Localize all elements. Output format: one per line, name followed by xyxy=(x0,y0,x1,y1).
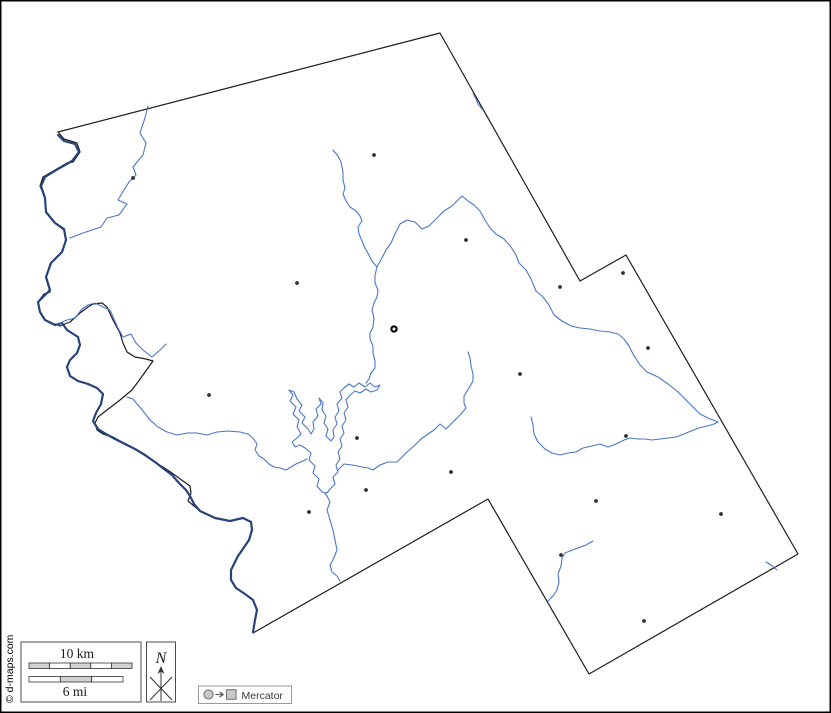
county-symbol-square xyxy=(227,690,237,700)
town-dot xyxy=(295,281,299,285)
scale-bar-km-segment xyxy=(70,663,91,669)
town-dot xyxy=(642,619,646,623)
town-dot xyxy=(624,434,628,438)
scale-bar-mi-segment xyxy=(60,677,91,683)
copyright-text: © d-maps.com xyxy=(4,634,16,703)
scale-bar-km-segment xyxy=(50,663,71,669)
town-dot xyxy=(372,153,376,157)
town-dot xyxy=(559,553,563,557)
town-dot xyxy=(719,512,723,516)
town-dot xyxy=(621,271,625,275)
scale-bar-mi-segment xyxy=(29,677,60,683)
scale-bar-mi-segment xyxy=(92,677,123,683)
town-dot xyxy=(558,285,562,289)
scale-bar-km-segment xyxy=(111,663,132,669)
scale-label-mi: 6 mi xyxy=(63,684,88,699)
scale-label-km: 10 km xyxy=(60,646,95,661)
map-frame xyxy=(1,1,831,713)
town-dot xyxy=(449,470,453,474)
projection-label: Mercator xyxy=(242,690,284,702)
county-seat-marker xyxy=(391,326,396,331)
town-dot xyxy=(207,393,211,397)
town-dot xyxy=(646,346,650,350)
county-map-svg: 10 km 6 mi N Mercator xyxy=(0,0,831,713)
town-dot xyxy=(131,176,135,180)
town-dot xyxy=(518,372,522,376)
town-dot xyxy=(355,436,359,440)
scale-bar-km-segment xyxy=(91,663,112,669)
city-symbol-circle xyxy=(204,690,213,699)
map-canvas: 10 km 6 mi N Mercator xyxy=(0,0,831,713)
scale-box: 10 km 6 mi xyxy=(21,642,141,702)
town-dot xyxy=(594,499,598,503)
north-box: N xyxy=(147,642,176,702)
scale-bar-mi xyxy=(29,677,123,683)
north-label: N xyxy=(155,650,168,667)
town-dot xyxy=(364,488,368,492)
scale-bar-km-segment xyxy=(29,663,50,669)
town-dot xyxy=(307,510,311,514)
scale-bar-km xyxy=(29,663,132,669)
town-dot xyxy=(464,238,468,242)
projection-box: Mercator xyxy=(199,686,292,704)
